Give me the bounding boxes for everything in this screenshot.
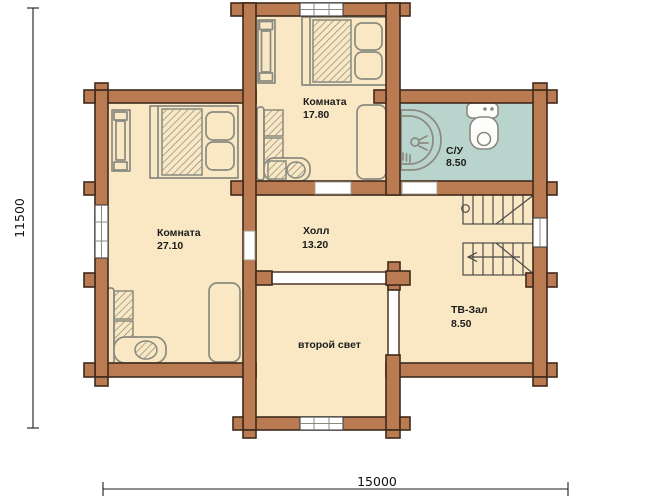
window-symbol-right — [533, 218, 547, 247]
room-label-bedroom-left-name: Комната — [157, 227, 201, 239]
window-symbol-top — [300, 3, 343, 16]
room-label-bedroom-top-area: 17.80 — [303, 109, 329, 121]
dimension-vertical-value: 11500 — [12, 198, 27, 238]
double-bed-symbol-left-bedroom — [150, 106, 238, 178]
room-label-tv-room-area: 8.50 — [451, 318, 472, 330]
double-bed-symbol-top-bedroom — [302, 17, 387, 85]
room-label-tv-room-name: ТВ-Зал — [451, 304, 488, 316]
room-label-bathroom-name: С/У — [446, 145, 464, 157]
door-opening-top-bedroom — [315, 182, 351, 194]
dimension-horizontal: 15000 — [103, 474, 568, 496]
floor-plan: Комната 17.80 С/У 8.50 Комната 27.10 Хол… — [0, 0, 663, 502]
pillow — [206, 142, 234, 170]
pillow — [355, 23, 382, 50]
room-label-second-light: второй свет — [298, 339, 361, 351]
room-label-hall-area: 13.20 — [302, 239, 328, 251]
room-label-hall-name: Холл — [303, 225, 329, 237]
cabinet-symbol-top-bedroom — [357, 105, 386, 179]
dimension-horizontal-value: 15000 — [357, 474, 397, 489]
window-symbol-bottom — [300, 417, 343, 430]
couch-symbol-left-bedroom — [209, 283, 240, 362]
window-symbol-left — [95, 205, 108, 258]
floor-bottom-wing — [243, 181, 400, 430]
wardrobe-symbol-top-bedroom — [258, 20, 275, 83]
pillow — [355, 52, 382, 79]
pillow — [206, 112, 234, 140]
floor-plan-drawing: Комната 17.80 С/У 8.50 Комната 27.10 Хол… — [0, 0, 663, 502]
dimension-vertical: 11500 — [12, 8, 39, 428]
door-opening-left-bedroom — [244, 231, 255, 260]
sink-symbol — [467, 103, 498, 118]
door-opening-bathroom — [402, 182, 437, 194]
wardrobe-symbol-left-bedroom — [112, 110, 130, 171]
room-label-bathroom-area: 8.50 — [446, 157, 467, 169]
room-label-bedroom-left-area: 27.10 — [157, 240, 183, 252]
room-label-bedroom-top-name: Комната — [303, 96, 347, 108]
toilet-symbol — [470, 117, 498, 149]
